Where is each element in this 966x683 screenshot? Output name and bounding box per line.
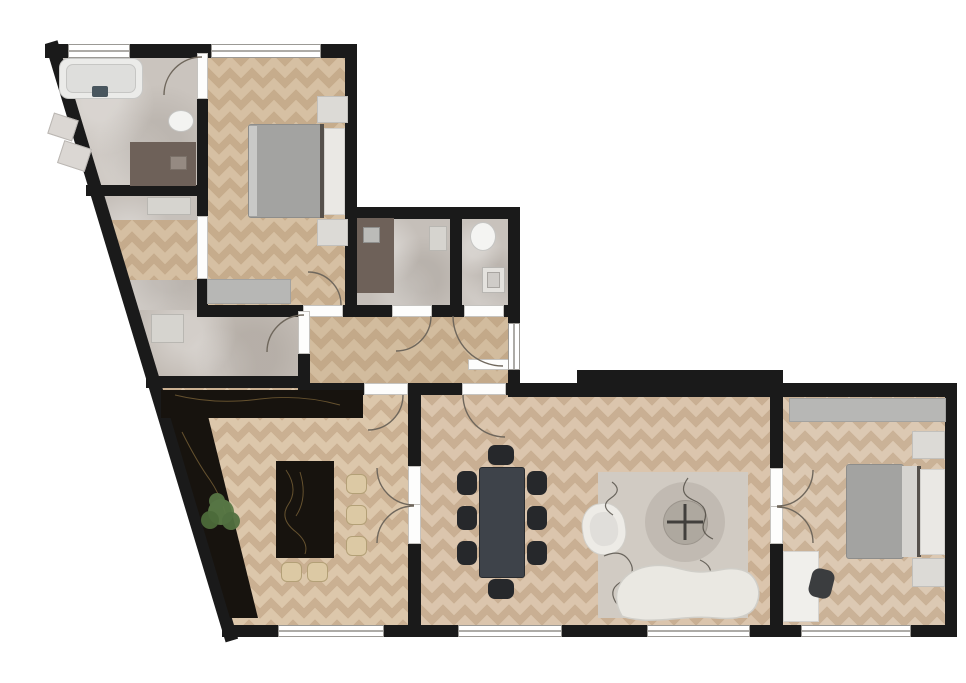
wall-living-top-a [508,383,578,397]
bed1-nightstand-bottom [317,219,348,246]
bed1-sheet-fold [249,126,257,216]
stool-3 [346,536,367,556]
wall-living-bed2-lower [770,543,783,637]
wall-laundry-wc [450,218,462,305]
bathtub-faucet [92,86,108,97]
vanity-basin [170,156,187,170]
laundry-cabinet [429,226,447,251]
door-sill-kitchen-double-low [408,504,421,544]
door-sill-kitchen [364,383,408,395]
window-bedroom1 [211,44,321,58]
stool-1 [346,474,367,494]
opening-bedroom1-left [197,216,208,279]
bed1-nightstand-top [317,96,348,123]
window-living [647,625,750,637]
corridor-closet [147,197,191,215]
bed2-nightstand-bottom [912,558,945,587]
dining-chair-right-1 [527,471,547,495]
window-bathroom [68,44,130,58]
wc-sink-basin [487,272,500,288]
hallway-floor [310,317,508,383]
bed1-duvet [248,124,324,218]
wall-kitchen-dining-upper [408,395,421,468]
window-dining [458,625,562,637]
toilet [470,222,496,251]
dining-chair-right-2 [527,506,547,530]
bathroom-sink [168,110,194,132]
dining-chair-top [488,445,514,465]
door-sill-bathroom [197,53,208,99]
kitchen-island [276,461,334,558]
door-sill-bedroom2-double-up [770,468,783,507]
wall-living-top-b [577,370,783,397]
wall-bathroom-bottom [86,185,208,196]
bed2-pillows [920,469,945,555]
wall-bedroom1-right [345,44,357,317]
bed2-wardrobe [789,398,946,422]
coffee-table [663,500,708,545]
stool-2 [346,505,367,525]
dining-chair-bottom [488,579,514,599]
wall-bedroom2-top [770,383,957,397]
dining-chair-right-3 [527,541,547,565]
stool-4 [281,562,302,582]
dining-chair-left-3 [457,541,477,565]
washing-machine [363,227,380,243]
dining-chair-left-1 [457,471,477,495]
bed2-nightstand-top [912,431,945,459]
wall-living-bed2-upper [770,397,783,470]
door-sill-entry [298,311,310,354]
entry-cabinet [151,314,184,343]
wall-entry-top [146,376,310,388]
window-bedroom2 [801,625,911,637]
hallway-fixture [468,359,513,370]
dining-chair-left-2 [457,506,477,530]
door-sill-kitchen-double-up [408,466,421,506]
window-hallway [508,323,520,370]
window-kitchen [278,625,384,637]
door-sill-laundry [392,305,432,317]
door-sill-wc [464,305,504,317]
floor-plan [0,0,966,683]
wall-right-outer [945,383,957,637]
wall-kitchen-dining-lower [408,543,421,637]
kitchen-counter-top [161,390,363,418]
bed1-wardrobe [207,279,291,304]
door-sill-bedroom2-double-low [770,506,783,544]
bed1-pillows [324,128,345,215]
stool-5 [307,562,328,582]
door-sill-dining [462,383,506,395]
dining-table [479,467,525,578]
bed2-duvet [846,464,904,559]
